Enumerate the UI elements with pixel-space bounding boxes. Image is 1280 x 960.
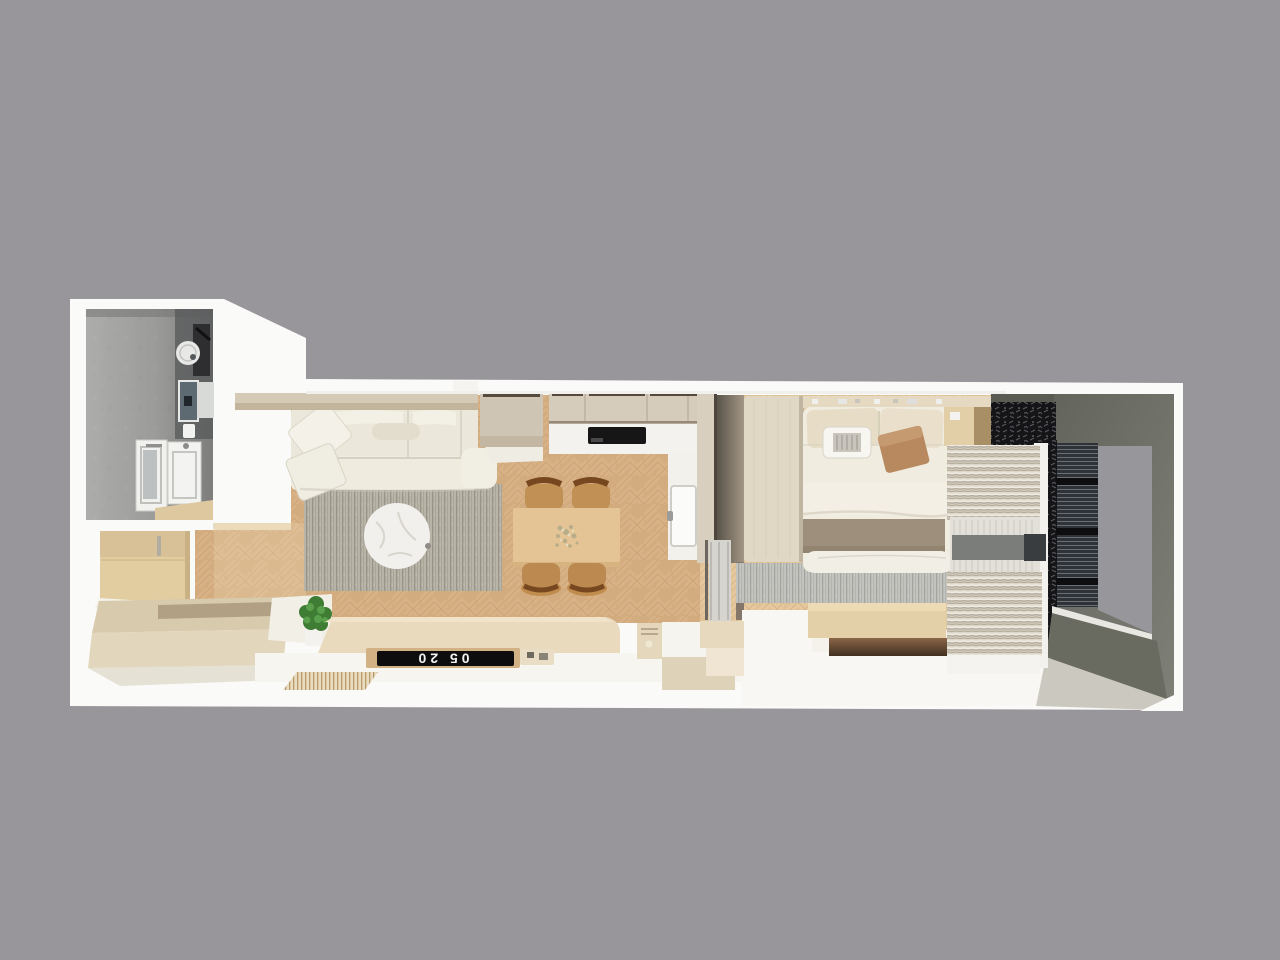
svg-text:05 20: 05 20 bbox=[414, 651, 469, 667]
